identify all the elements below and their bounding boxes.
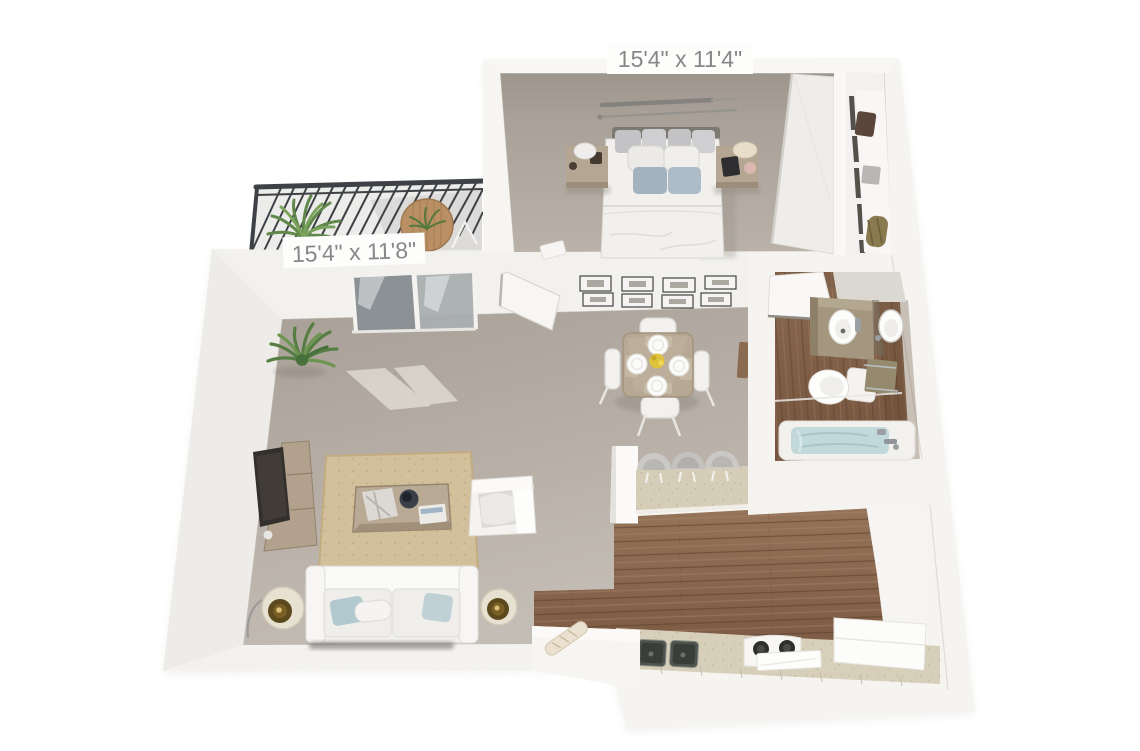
svg-text:15'4" x 11'4": 15'4" x 11'4" [618, 46, 742, 72]
svg-text:15'4" x 11'8": 15'4" x 11'8" [291, 237, 416, 267]
